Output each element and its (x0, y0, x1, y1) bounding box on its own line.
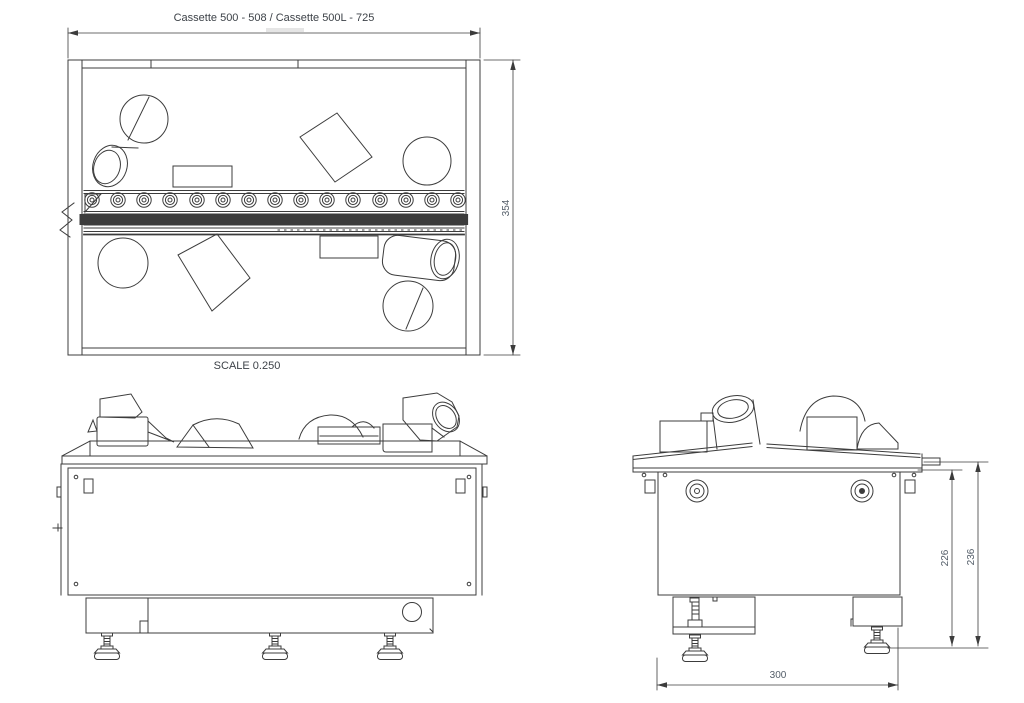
dim-354-label: 354 (501, 199, 512, 216)
dim-300-label: 300 (770, 670, 787, 681)
side-feet (683, 627, 890, 662)
front-plinth (86, 598, 433, 633)
knockout-right (851, 480, 873, 502)
fuel-bed-shapes-lower (98, 234, 463, 331)
front-view (53, 393, 487, 660)
side-logs (660, 392, 898, 452)
front-logs (88, 393, 465, 452)
front-body (53, 464, 487, 595)
top-view (60, 60, 480, 355)
lamp-rollers (85, 193, 465, 207)
burner-strip (84, 191, 465, 235)
technical-drawing-canvas: Cassette 500 - 508 / Cassette 500L - 725… (0, 0, 1024, 703)
hanger-tab-left (645, 480, 655, 493)
dim-top-width (68, 28, 480, 58)
side-tray (633, 443, 940, 472)
hanger-tab-right (456, 479, 465, 493)
overflow-spout (922, 458, 940, 465)
knockout-left (686, 480, 708, 502)
water-inlet-hook (60, 203, 74, 237)
side-view (633, 392, 940, 662)
drawing-sheet: Cassette 500 - 508 / Cassette 500L - 725… (0, 0, 1024, 703)
dim-236-label: 236 (966, 548, 977, 565)
fuel-bed-shapes-upper (87, 95, 451, 191)
hanger-tab-left (84, 479, 93, 493)
faint-dimension-smudge (266, 28, 304, 32)
drawing-title: Cassette 500 - 508 / Cassette 500L - 725 (174, 12, 375, 24)
hanger-tab-right (905, 480, 915, 493)
front-feet (95, 633, 403, 660)
side-brackets (673, 597, 902, 634)
dim-226-label: 226 (940, 549, 951, 566)
side-body (642, 472, 916, 595)
scale-label: SCALE 0.250 (214, 360, 281, 372)
drain-hole (403, 603, 422, 622)
